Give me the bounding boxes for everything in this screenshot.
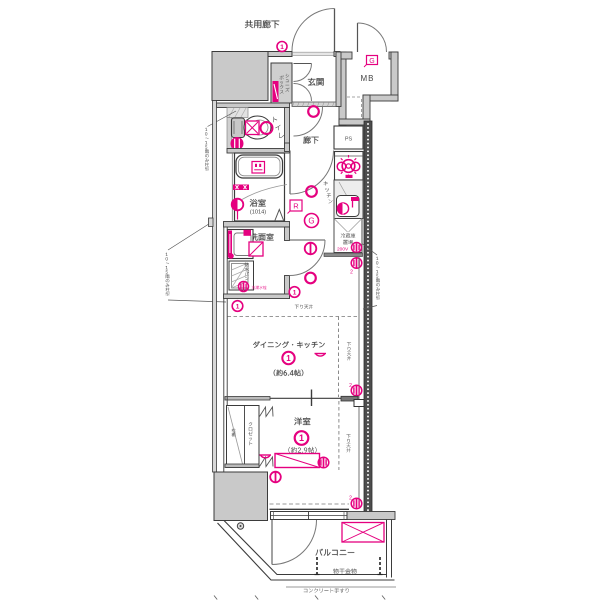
svg-text:1: 1 bbox=[293, 289, 297, 296]
svg-text:2: 2 bbox=[350, 270, 353, 276]
svg-text:2: 2 bbox=[349, 383, 352, 389]
svg-text:1: 1 bbox=[236, 303, 240, 310]
svg-text:G: G bbox=[369, 58, 374, 65]
svg-text:R: R bbox=[293, 202, 299, 211]
svg-text:PS: PS bbox=[345, 137, 353, 143]
svg-text:200V: 200V bbox=[337, 247, 349, 253]
svg-text:1: 1 bbox=[299, 433, 304, 443]
svg-text:1: 1 bbox=[286, 354, 291, 363]
svg-text:(1014): (1014) bbox=[250, 210, 266, 216]
svg-text:1: 1 bbox=[280, 44, 284, 51]
svg-text:2: 2 bbox=[349, 496, 352, 502]
svg-text:G: G bbox=[308, 217, 314, 226]
svg-text:MB: MB bbox=[361, 74, 375, 83]
